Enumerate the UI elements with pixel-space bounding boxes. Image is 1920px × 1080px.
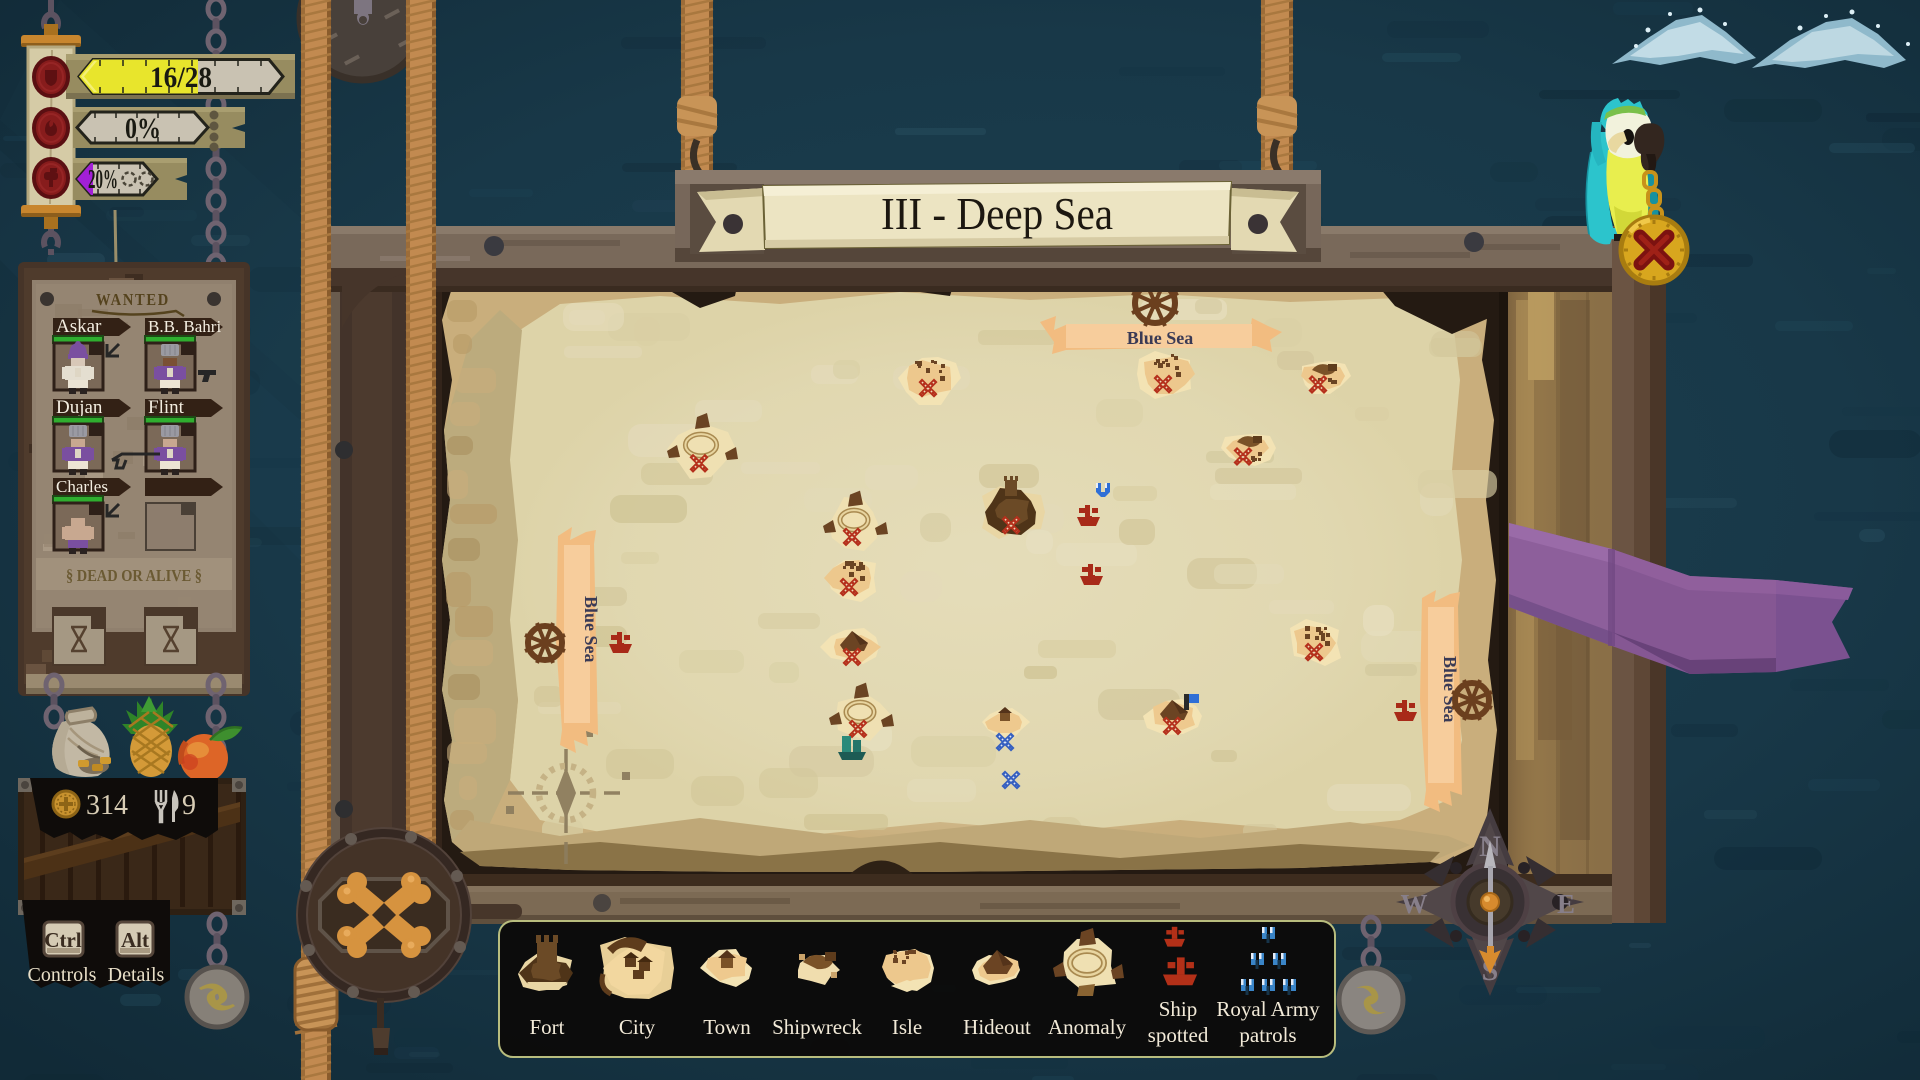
svg-text:Fort: Fort bbox=[529, 1015, 564, 1039]
svg-text:Ship: Ship bbox=[1159, 997, 1198, 1021]
svg-text:Town: Town bbox=[703, 1015, 751, 1039]
svg-text:Blue Sea: Blue Sea bbox=[581, 596, 601, 663]
svg-text:Charles: Charles bbox=[56, 477, 108, 496]
svg-text:Dujan: Dujan bbox=[56, 397, 103, 418]
svg-text:314: 314 bbox=[86, 790, 128, 821]
svg-text:III - Deep Sea: III - Deep Sea bbox=[881, 188, 1113, 239]
svg-text:Isle: Isle bbox=[892, 1015, 922, 1039]
svg-text:9: 9 bbox=[182, 790, 196, 821]
svg-text:Flint: Flint bbox=[148, 397, 185, 418]
svg-text:spotted: spotted bbox=[1148, 1023, 1209, 1047]
svg-text:§ DEAD OR ALIVE §: § DEAD OR ALIVE § bbox=[66, 566, 202, 585]
svg-text:20%: 20% bbox=[88, 164, 118, 194]
svg-text:WANTED: WANTED bbox=[96, 290, 170, 309]
svg-text:W: W bbox=[1401, 889, 1428, 919]
svg-text:Ctrl: Ctrl bbox=[44, 928, 81, 952]
svg-text:Askar: Askar bbox=[56, 316, 102, 337]
svg-text:Details: Details bbox=[108, 964, 165, 986]
svg-text:Blue Sea: Blue Sea bbox=[1127, 328, 1194, 348]
svg-text:0%: 0% bbox=[125, 112, 161, 145]
svg-text:Shipwreck: Shipwreck bbox=[772, 1015, 862, 1039]
svg-text:patrols: patrols bbox=[1239, 1023, 1296, 1047]
svg-text:City: City bbox=[619, 1015, 656, 1039]
svg-text:Alt: Alt bbox=[121, 928, 149, 952]
svg-text:Royal Army: Royal Army bbox=[1216, 997, 1320, 1021]
svg-text:16/28: 16/28 bbox=[150, 61, 212, 94]
svg-text:Controls: Controls bbox=[28, 964, 97, 986]
svg-text:B.B. Bahri: B.B. Bahri bbox=[148, 317, 221, 336]
svg-text:Anomaly: Anomaly bbox=[1048, 1015, 1127, 1039]
svg-text:Hideout: Hideout bbox=[963, 1015, 1031, 1039]
svg-text:E: E bbox=[1557, 889, 1575, 919]
